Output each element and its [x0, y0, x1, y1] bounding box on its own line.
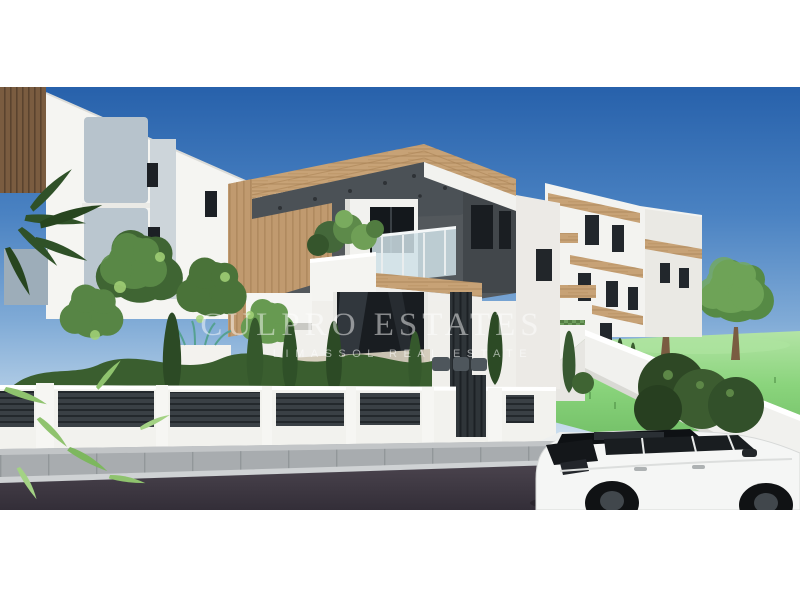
- scene-svg: CULPRO ESTATES LIMASSOL REAL ESTATE: [0, 87, 800, 510]
- wing-setback: [645, 209, 702, 337]
- page: CULPRO ESTATES LIMASSOL REAL ESTATE: [0, 0, 800, 600]
- watermark-brand: CULPRO ESTATES: [200, 307, 543, 343]
- side-recess-window-2: [499, 211, 511, 249]
- fence-gate: [456, 375, 486, 437]
- watermark-tagline: LIMASSOL REAL ESTATE: [273, 348, 533, 360]
- side-wall-louver: [536, 249, 552, 281]
- car-mirror: [742, 449, 757, 457]
- wing-balcony-rail: [560, 285, 596, 298]
- property-rendering-photo: CULPRO ESTATES LIMASSOL REAL ESTATE: [0, 87, 800, 510]
- timber-slat-screen: [0, 87, 46, 193]
- suv-car: [530, 429, 800, 510]
- side-recess-window: [471, 205, 493, 249]
